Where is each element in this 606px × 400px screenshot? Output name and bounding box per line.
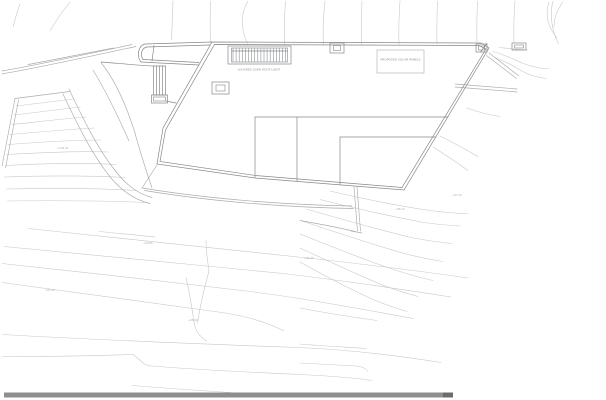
contour-line: [547, 2, 557, 38]
site-plan-svg: LOUVRES OVER ROOF LIGHTPROPOSED SOLAR PA…: [0, 0, 606, 400]
site-line: [142, 165, 157, 188]
building-line: [147, 45, 211, 47]
building-line: [143, 60, 199, 63]
building-line: [160, 45, 486, 188]
site-plan-page: LOUVRES OVER ROOF LIGHTPROPOSED SOLAR PA…: [0, 0, 606, 400]
contour-line: [300, 262, 407, 312]
site-line: [489, 53, 519, 76]
site-line: [351, 231, 362, 233]
contour-line: [16, 99, 74, 106]
contour-line: [284, 1, 285, 44]
contour-line: [4, 176, 125, 178]
building-line: [141, 62, 199, 65]
top-edge-box-outer: [330, 43, 344, 53]
roof-vent-inner: [216, 85, 225, 91]
contour-line: [2, 355, 372, 381]
right-box-inner: [515, 45, 524, 48]
site-line: [15, 92, 70, 99]
contour-line: [477, 1, 478, 42]
building-line: [157, 42, 489, 190]
louver-box-outer: [228, 46, 291, 64]
contour-line: [242, 1, 248, 44]
contour-line: [194, 322, 207, 341]
scale-bar: [4, 393, 453, 398]
contour-line: [323, 1, 325, 45]
site-line: [135, 133, 152, 188]
spot-level-label: +96.40: [304, 256, 314, 260]
contour-line: [440, 136, 478, 157]
contour-line: [554, 2, 563, 27]
spot-level-label: +98.10: [395, 207, 405, 211]
contour-line: [514, 1, 515, 43]
top-edge-box-inner: [334, 46, 341, 51]
site-line: [93, 70, 129, 141]
louver-caption: LOUVRES OVER ROOF LIGHT: [238, 68, 281, 72]
scale-bar-end-cap: [443, 393, 453, 398]
stair-landing-outer: [152, 95, 168, 103]
building-line: [141, 47, 146, 60]
spot-level-label: +95.60: [188, 318, 198, 322]
contour-line: [302, 221, 443, 262]
contour-line: [433, 147, 468, 171]
site-line: [354, 187, 358, 231]
panel-label: PROPOSED SOLAR PANELS: [381, 58, 421, 62]
contour-line: [467, 108, 500, 117]
contour-line: [437, 1, 438, 44]
contour-line: [28, 229, 468, 279]
site-line: [2, 99, 15, 167]
contour-line: [361, 1, 362, 45]
site-line: [69, 89, 152, 198]
site-line: [487, 56, 517, 79]
contour-line: [551, 1, 558, 44]
contour-line: [6, 188, 135, 190]
contour-line: [306, 209, 452, 244]
contour-line: [198, 271, 210, 323]
spot-level-label: +97.50: [452, 193, 462, 197]
spot-level-label: +99.80: [143, 241, 153, 245]
contour-line: [5, 163, 116, 165]
contour-line: [300, 363, 368, 372]
building-line: [145, 42, 212, 44]
roof-vent-outer: [212, 82, 229, 94]
contour-line: [50, 2, 70, 31]
site-line: [300, 221, 355, 232]
louver-box-inner: [232, 48, 288, 62]
site-line: [2, 47, 136, 75]
panel-label-box: [377, 50, 424, 73]
stair-landing-inner: [154, 97, 166, 101]
building-line: [101, 62, 154, 66]
contour-line: [99, 232, 155, 238]
building-line: [152, 46, 154, 62]
contour-line: [2, 335, 441, 363]
spot-level-label: +104.20: [57, 146, 69, 150]
contour-line: [4, 247, 451, 298]
site-line: [63, 94, 150, 204]
contour-line: [399, 1, 400, 45]
contour-line: [172, 1, 174, 40]
spot-level-label: +97.20: [45, 288, 55, 292]
site-line: [101, 63, 135, 134]
contour-line: [13, 4, 20, 27]
contour-line: [8, 201, 148, 203]
contour-line: [206, 241, 209, 272]
